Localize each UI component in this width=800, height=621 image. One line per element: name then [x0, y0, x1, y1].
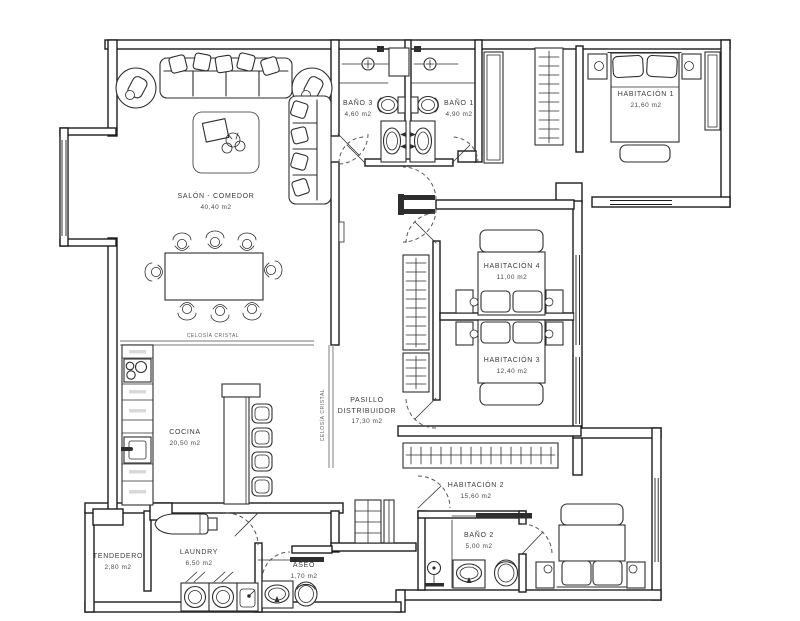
- cooktop: [124, 359, 151, 382]
- room-area: 5,00 m2: [464, 542, 494, 553]
- chaise-sofa: [289, 96, 331, 204]
- room-label-bano3: BAÑO 3 4,60 m2: [343, 99, 373, 120]
- floor-plan-drawing: [0, 0, 800, 621]
- wardrobe-hangers-habitacion-2: [403, 443, 558, 468]
- room-label-bano2: BAÑO 2 5,00 m2: [464, 531, 494, 552]
- room-label-bano1: BAÑO 1 4,90 m2: [444, 99, 474, 120]
- bed-habitacion-2: [557, 504, 626, 590]
- sofa: [160, 52, 292, 98]
- room-label-aseo: ASEO 1,70 m2: [291, 561, 318, 582]
- room-name: SALÓN - COMEDOR: [177, 193, 254, 200]
- room-area: 20,50 m2: [169, 439, 200, 450]
- rug-and-coffee-table: [193, 112, 259, 173]
- room-name: COCINA: [169, 429, 200, 436]
- wardrobe-hangers-dressing: [535, 48, 563, 145]
- kitchen-sink: [121, 437, 151, 463]
- armchair-left: [116, 68, 156, 108]
- room-area: 17,30 m2: [338, 417, 397, 428]
- glass-partition-label-horizontal: CELOSÍA CRISTAL: [187, 333, 240, 339]
- washer: [181, 572, 209, 611]
- room-label-tendedero: TENDEDERO 2,80 m2: [93, 552, 143, 573]
- dining-table: [165, 253, 263, 300]
- room-area: 6,50 m2: [180, 559, 218, 570]
- room-label-habitacion1: HABITACIÓN 1 21,60 m2: [618, 90, 675, 111]
- room-name: ASEO: [293, 562, 315, 569]
- room-area: 21,60 m2: [618, 101, 675, 112]
- room-label-salon: SALÓN - COMEDOR 40,40 m2: [177, 192, 254, 213]
- room-name-2: DISTRIBUIDOR: [338, 408, 397, 415]
- room-name: HABITACIÓN 1: [618, 91, 675, 98]
- wardrobe-column-habitacion-1: [705, 52, 720, 130]
- floor-plan: SALÓN - COMEDOR 40,40 m2 BAÑO 3 4,60 m2 …: [0, 0, 800, 621]
- room-label-habitacion4: HABITACIÓN 4 11,00 m2: [484, 262, 541, 283]
- room-name: PASILLO: [350, 397, 384, 404]
- room-label-pasillo: PASILLO DISTRIBUIDOR 17,30 m2: [338, 396, 397, 428]
- room-name: LAUNDRY: [180, 549, 218, 556]
- room-name: HABITACIÓN 2: [448, 482, 505, 489]
- room-name: TENDEDERO: [93, 553, 143, 560]
- room-name: BAÑO 3: [343, 100, 373, 107]
- room-area: 4,60 m2: [343, 110, 373, 121]
- radiator: [339, 222, 344, 242]
- shelving-units-habitacion-2: [355, 500, 394, 543]
- dryer: [209, 572, 237, 611]
- room-area: 12,40 m2: [484, 367, 541, 378]
- wardrobe-plain: [484, 52, 503, 163]
- room-label-habitacion2: HABITACIÓN 2 15,60 m2: [448, 481, 505, 502]
- room-name: HABITACIÓN 3: [484, 357, 541, 364]
- wardrobe-hangers-pasillo-1: [403, 255, 429, 350]
- room-area: 15,60 m2: [448, 492, 505, 503]
- room-area: 2,80 m2: [93, 563, 143, 574]
- room-area: 40,40 m2: [177, 203, 254, 214]
- laundry-sink: [237, 583, 258, 611]
- room-area: 11,00 m2: [484, 273, 541, 284]
- room-name: BAÑO 2: [464, 532, 494, 539]
- room-area: 4,90 m2: [444, 110, 474, 121]
- ironing-board: [155, 514, 217, 534]
- room-label-laundry: LAUNDRY 6,50 m2: [180, 548, 218, 569]
- bar-stools: [252, 404, 272, 496]
- wardrobe-hangers-pasillo-2: [403, 353, 429, 392]
- room-area: 1,70 m2: [291, 572, 318, 583]
- glass-partition-label-vertical: CELOSÍA CRISTAL: [320, 389, 326, 442]
- room-label-habitacion3: HABITACIÓN 3 12,40 m2: [484, 356, 541, 377]
- room-name: BAÑO 1: [444, 100, 474, 107]
- room-label-cocina: COCINA 20,50 m2: [169, 428, 200, 449]
- room-name: HABITACIÓN 4: [484, 263, 541, 270]
